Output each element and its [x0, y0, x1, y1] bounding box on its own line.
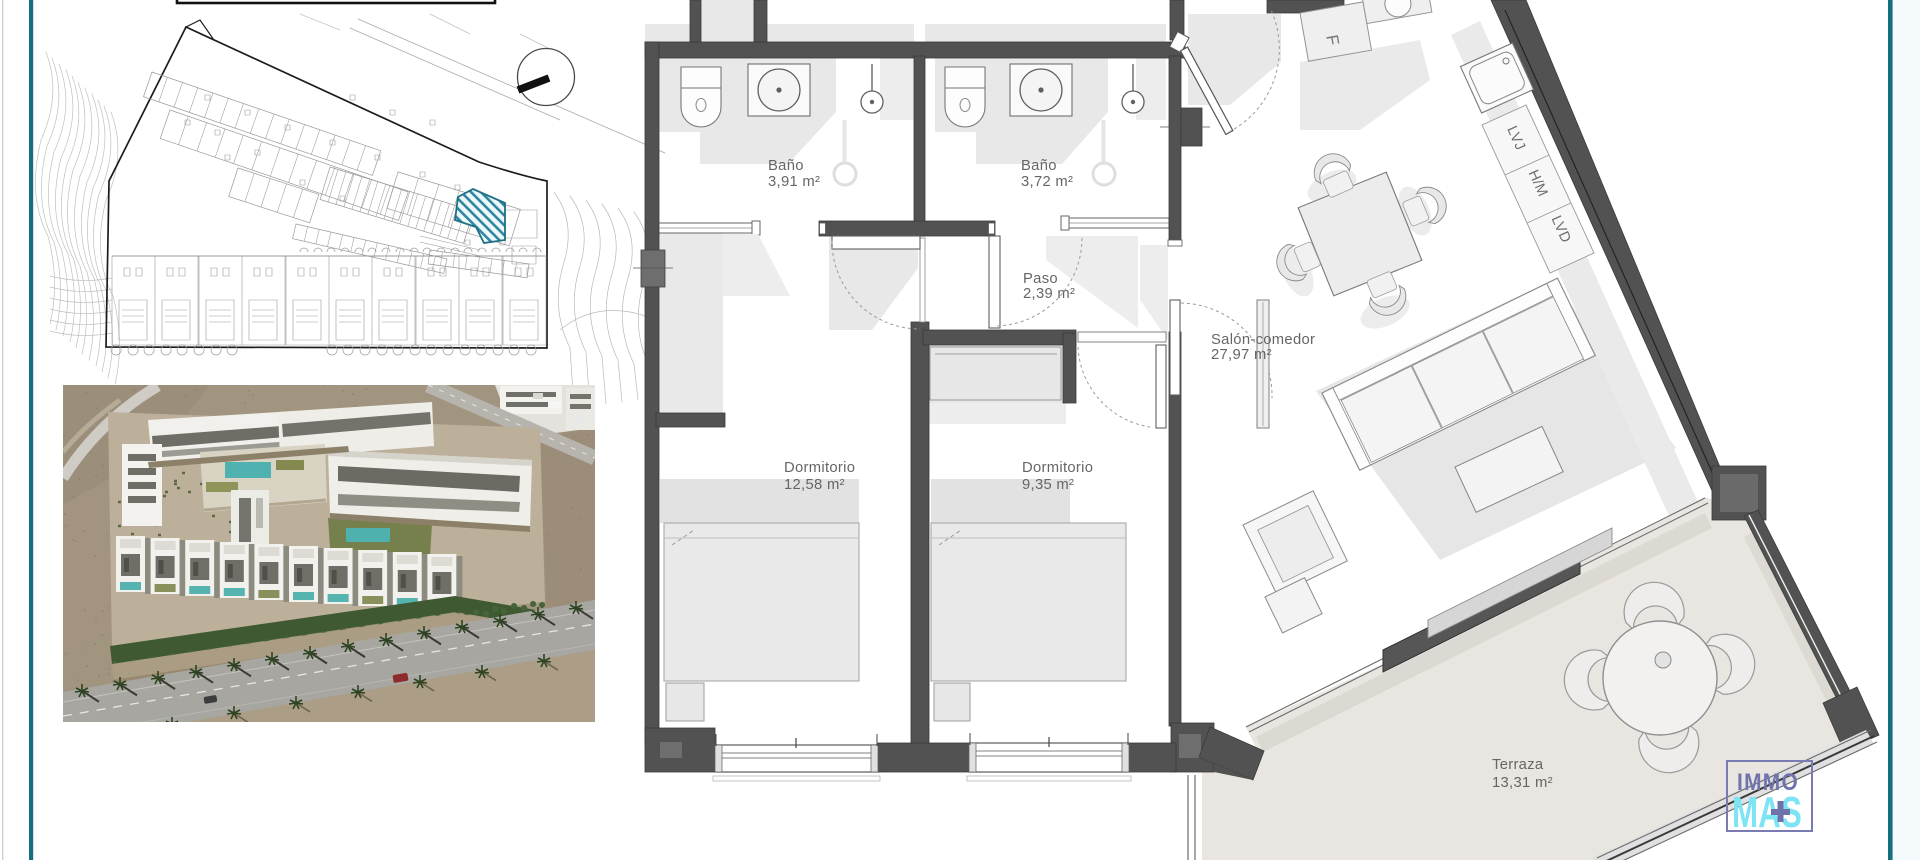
svg-text:Baño: Baño [1021, 158, 1057, 174]
svg-text:13,31 m²: 13,31 m² [1492, 775, 1553, 791]
svg-text:27,97 m²: 27,97 m² [1211, 347, 1272, 363]
svg-text:2,39 m²: 2,39 m² [1023, 286, 1075, 302]
svg-text:Salón-comedor: Salón-comedor [1211, 332, 1315, 348]
svg-text:Dormitorio: Dormitorio [1022, 460, 1093, 476]
svg-text:12,58 m²: 12,58 m² [784, 477, 845, 493]
svg-text:Baño: Baño [768, 158, 804, 174]
svg-text:MAS: MAS [1732, 788, 1802, 837]
svg-text:3,72 m²: 3,72 m² [1021, 174, 1073, 190]
svg-text:Paso: Paso [1023, 271, 1058, 287]
svg-text:Terraza: Terraza [1492, 757, 1544, 773]
svg-text:Dormitorio: Dormitorio [784, 460, 855, 476]
svg-text:9,35 m²: 9,35 m² [1022, 477, 1074, 493]
svg-text:3,91 m²: 3,91 m² [768, 174, 820, 190]
